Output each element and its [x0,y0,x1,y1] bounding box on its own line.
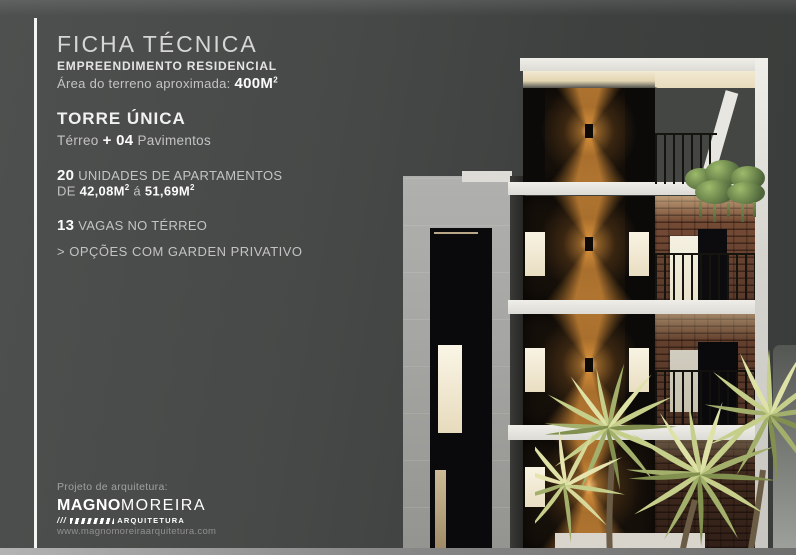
garden-option-line: > OPÇÕES COM GARDEN PRIVATIVO [57,244,303,259]
terrain-area-sup: 2 [273,76,278,85]
hanging-vine [699,202,702,218]
window-lintel [434,232,478,234]
terrain-area-value: 400M [235,75,274,92]
palm-trees [535,340,796,555]
lit-window-pane [438,345,462,433]
hanging-vine [741,204,744,222]
tower-plus: + [103,132,117,149]
lit-window [629,232,649,276]
brand-slashes: /// [57,516,67,525]
brand-primary: MAGNO [57,497,121,514]
hanging-vine [727,203,730,217]
floor-slab [508,300,768,314]
amber-lit-panel [523,88,655,182]
brand-stripe-bar [70,518,115,524]
terrain-area-line: Área do terreno aproximada: 400M2 [57,75,278,92]
balcony-railing [655,253,755,302]
units-range-line: DE 42,08M2 á 51,69M2 [57,183,195,198]
hanging-vine [753,202,756,217]
residential-heading: EMPREENDIMENTO RESIDENCIAL [57,59,277,73]
brand-website: www.magnomoreiraarquitetura.com [57,526,216,537]
wall-slab-lip [462,171,512,182]
brand-logo: MAGNOMOREIRA [57,497,206,515]
tower-ground-label: Térreo [57,133,103,148]
wall-sconce [585,124,593,138]
tower-heading: TORRE ÚNICA [57,109,186,129]
units-line: 20 UNIDADES DE APARTAMENTOS [57,167,282,184]
brand-secondary: MOREIRA [121,497,206,514]
brand-descriptor: ARQUITETURA [117,516,185,525]
units-label: UNIDADES DE APARTAMENTOS [74,168,282,183]
terrain-area-label: Área do terreno aproximada: [57,76,235,91]
floor-slab [520,58,768,71]
lit-door-strip [435,470,446,550]
amber-lit-panel [523,196,655,300]
page-title: FICHA TÉCNICA [57,31,258,58]
top-edge-glow [0,0,796,16]
units-area-from: 42,08M [80,183,125,198]
units-area-to-sup: 2 [190,183,195,192]
parking-line: 13 VAGAS NO TÉRREO [57,217,207,234]
parking-label: VAGAS NO TÉRREO [74,218,207,233]
lit-window [525,232,545,276]
parking-count: 13 [57,217,74,234]
credit-label: Projeto de arquitetura: [57,481,168,493]
accent-vertical-line [34,18,37,548]
balcony-plant [683,160,767,222]
units-range-connector: á [130,183,145,198]
tower-floors-count: 04 [116,132,133,149]
units-area-to: 51,69M [145,183,190,198]
plant-leaf [727,182,765,204]
tower-floors-line: Térreo + 04 Pavimentos [57,132,211,149]
wall-sconce [585,237,593,251]
hanging-vine [713,204,716,222]
bottom-edge-strip [0,548,796,555]
tower-floors-word: Pavimentos [133,133,211,148]
stairwell-window [430,228,492,555]
units-range-prefix: DE [57,183,80,198]
units-count: 20 [57,167,74,184]
building-render [390,0,796,555]
info-panel: FICHA TÉCNICA EMPREENDIMENTO RESIDENCIAL… [0,0,390,555]
slide: FICHA TÉCNICA EMPREENDIMENTO RESIDENCIAL… [0,0,796,555]
brand-sub-line: /// ARQUITETURA [57,516,185,525]
